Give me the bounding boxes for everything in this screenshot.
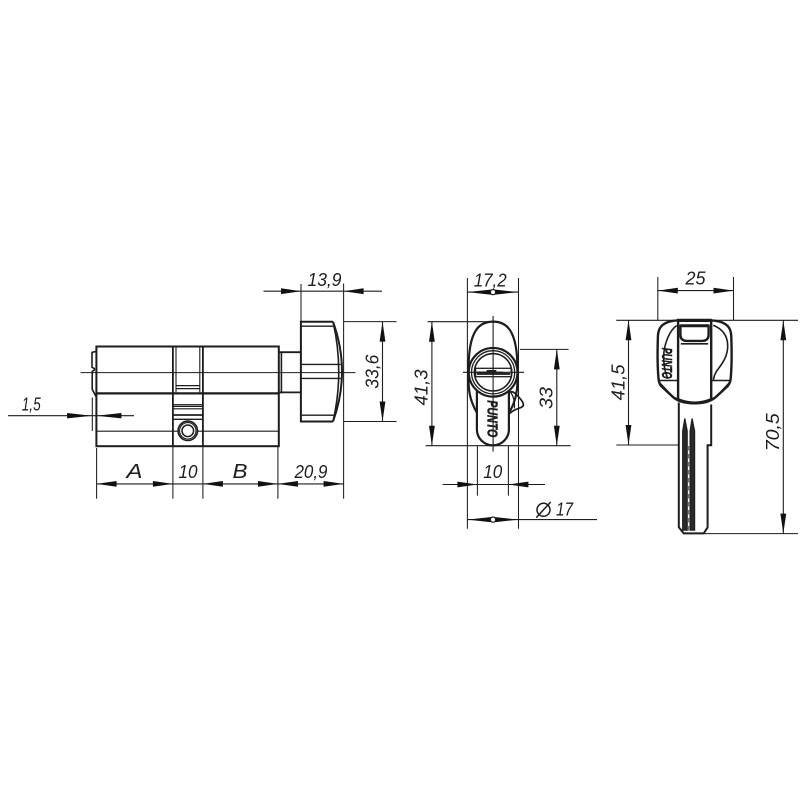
svg-text:41,5: 41,5: [608, 363, 628, 400]
svg-text:PUNTO: PUNTO: [658, 348, 675, 379]
svg-text:70,5: 70,5: [763, 412, 783, 451]
svg-text:A: A: [125, 461, 142, 483]
svg-text:17: 17: [556, 500, 574, 520]
svg-text:17,2: 17,2: [474, 271, 507, 291]
svg-text:1,5: 1,5: [22, 395, 42, 415]
svg-text:41,3: 41,3: [412, 370, 432, 406]
svg-text:10: 10: [179, 462, 198, 482]
svg-text:13,9: 13,9: [308, 270, 342, 290]
svg-text:PUNTO: PUNTO: [484, 400, 500, 438]
svg-text:20,9: 20,9: [294, 462, 328, 482]
svg-text:25: 25: [685, 269, 707, 289]
svg-text:33: 33: [537, 387, 557, 409]
svg-text:B: B: [233, 461, 248, 483]
svg-text:33,6: 33,6: [362, 354, 382, 389]
svg-text:10: 10: [483, 462, 502, 482]
